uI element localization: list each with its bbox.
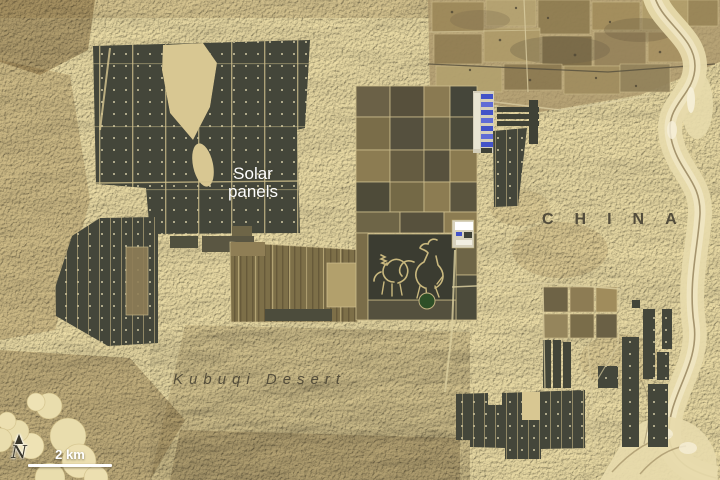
satellite-map: Solar panels CHINA Kubuqi Desert 2 km N (0, 0, 720, 480)
north-arrow-icon (15, 434, 23, 444)
compass-label: N (6, 444, 32, 462)
horse-shaped-solar-array (368, 234, 456, 309)
brown-field-block (230, 242, 362, 322)
satellite-terrain (0, 0, 720, 480)
facility-buildings (452, 220, 474, 248)
scale-bar-line (28, 464, 112, 467)
pond (419, 293, 435, 309)
scale-bar: 2 km (28, 447, 112, 467)
scale-bar-label: 2 km (28, 447, 112, 462)
blue-buildings (473, 91, 494, 153)
compass: N (6, 434, 32, 462)
